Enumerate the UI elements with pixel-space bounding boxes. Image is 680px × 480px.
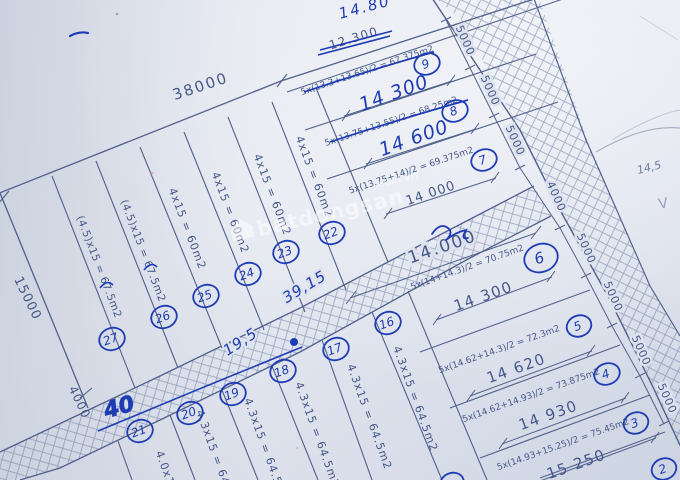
plan-drawing: 38000 15000 4000 12.300 (4.5)x15 = 67.5m…: [0, 0, 680, 480]
photographed-land-plot-plan: { "watermark": {"word": "batdongsan", "s…: [0, 0, 680, 480]
paper-speck: [296, 447, 299, 450]
paper-speck: [116, 13, 119, 16]
paper-speck: [151, 172, 154, 175]
ink-dot: [290, 338, 298, 346]
